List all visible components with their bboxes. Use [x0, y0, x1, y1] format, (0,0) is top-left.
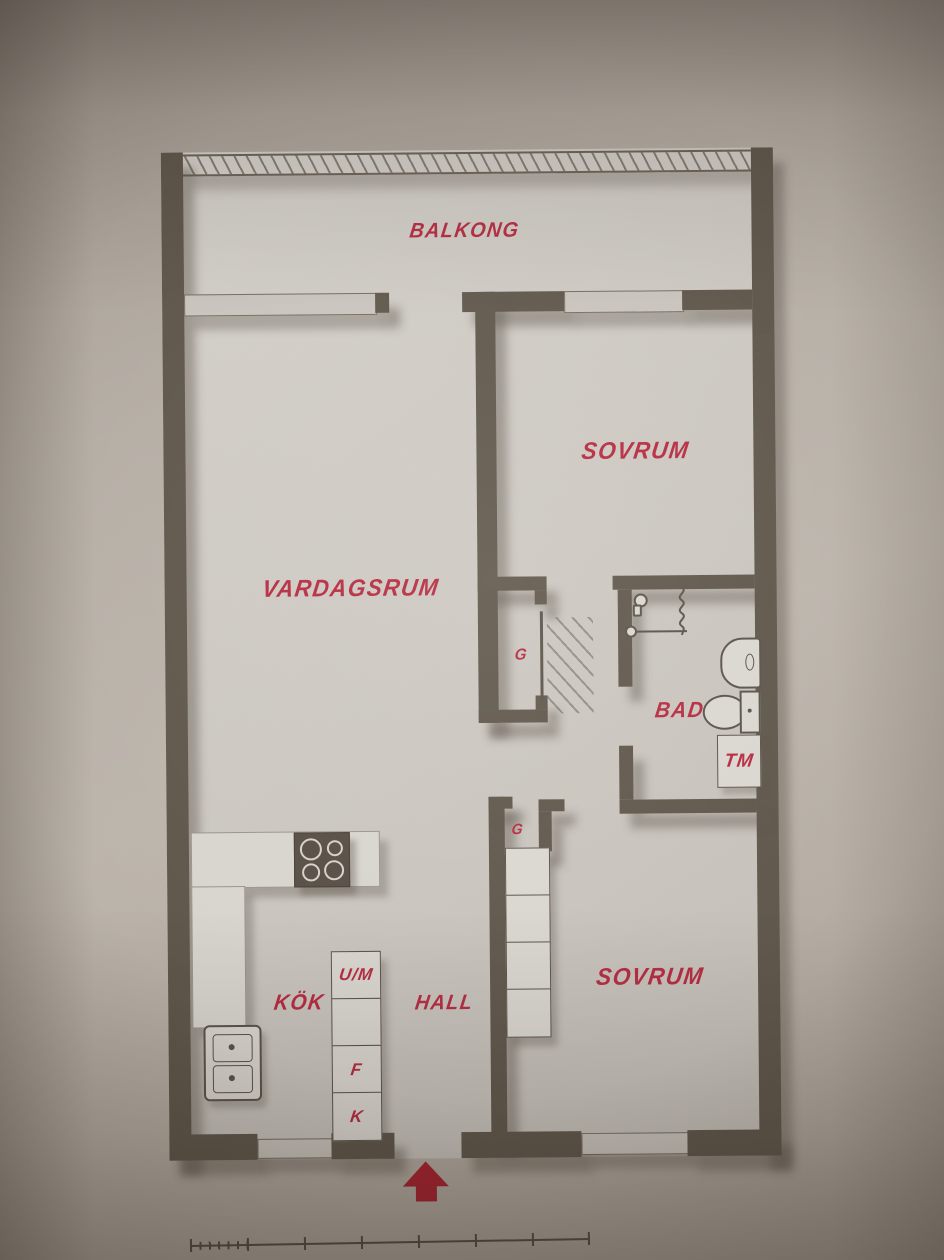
room-label-sovrum-bottom: SOVRUM [594, 963, 705, 992]
cabinet-um: U/M [331, 951, 381, 1000]
toilet-tank [740, 690, 761, 733]
cabinet-blank [331, 998, 381, 1047]
scale-bar-tick [247, 1238, 249, 1251]
washing-machine-label: TM [723, 750, 755, 772]
window [564, 290, 684, 313]
window [184, 293, 377, 317]
toilet-button [748, 709, 752, 713]
floor-plan: U/M F K TM BALKONG SOVRUM [0, 0, 944, 1260]
scale-bar-tick [588, 1232, 590, 1245]
entrance-arrow-stem [416, 1185, 437, 1201]
wardrobe-shelf [505, 894, 550, 943]
entrance-arrow-icon [403, 1161, 449, 1186]
kitchen-counter [191, 831, 380, 889]
room-label-kok: KÖK [272, 989, 326, 1015]
room-label-vardagsrum: VARDAGSRUM [260, 574, 440, 604]
wall-segment [687, 1129, 781, 1156]
wall-segment [618, 590, 633, 687]
scale-bar-tick [532, 1233, 534, 1246]
wall-segment [619, 799, 756, 814]
stove-burner [302, 863, 320, 881]
wardrobe-shelf [505, 847, 550, 896]
shower-knob [625, 626, 637, 638]
room-label-balkong: BALKONG [408, 219, 521, 244]
stove-burner [327, 840, 343, 856]
cabinet-f: F [332, 1045, 382, 1094]
wall-segment [488, 797, 512, 809]
window [257, 1138, 333, 1159]
washbasin-drain [745, 654, 754, 671]
wardrobe-shelves [505, 847, 552, 1037]
wall-segment [538, 799, 564, 811]
wall-segment [461, 1131, 581, 1158]
stove-burner [324, 860, 344, 880]
scale-bar-tick [190, 1239, 192, 1252]
closet-label-g-mid: G [513, 647, 528, 665]
closet-label-g-bottom: G [510, 821, 525, 838]
wall-segment [619, 746, 633, 800]
closet-door-shadow [547, 617, 594, 713]
cabinet-k: K [332, 1092, 382, 1141]
wall-segment [475, 292, 499, 723]
wardrobe-shelf [506, 989, 551, 1038]
room-label-bad: BAD [653, 697, 705, 723]
room-label-hall: HALL [414, 991, 475, 1016]
stove-burner [300, 838, 322, 860]
shower-arm [633, 605, 642, 617]
wall-segment [539, 811, 552, 851]
scale-bar-minor-ticks [190, 1241, 247, 1250]
shower-curtain-line [676, 587, 689, 635]
window [581, 1132, 689, 1155]
cabinet-label-f: F [350, 1060, 364, 1080]
scale-bar-line [190, 1238, 590, 1247]
scale-bar-tick [475, 1234, 477, 1247]
wall-segment [169, 1134, 257, 1161]
washbasin-icon [720, 637, 761, 688]
cabinet-label-k: K [349, 1107, 365, 1127]
stove-icon [294, 832, 350, 887]
cabinet-label-um: U/M [338, 965, 375, 985]
wardrobe-shelf [506, 942, 551, 991]
wall-segment [682, 290, 752, 311]
kitchen-cabinets: U/M F K [331, 951, 383, 1141]
sink-basin [213, 1034, 253, 1062]
scale-bar-tick [418, 1235, 420, 1248]
washing-machine-box: TM [717, 734, 761, 787]
wall-segment [478, 576, 547, 591]
wall-segment [535, 590, 547, 604]
room-label-sovrum-top: SOVRUM [580, 437, 691, 466]
kitchen-sink-icon [203, 1025, 262, 1102]
sink-basin [213, 1065, 253, 1093]
floor-plan-photo: U/M F K TM BALKONG SOVRUM [0, 0, 944, 1260]
kitchen-counter [191, 886, 246, 1028]
wall-segment [479, 709, 548, 723]
scale-bar-tick [361, 1236, 363, 1249]
scale-bar-tick [304, 1237, 306, 1250]
wall-segment [375, 293, 389, 313]
